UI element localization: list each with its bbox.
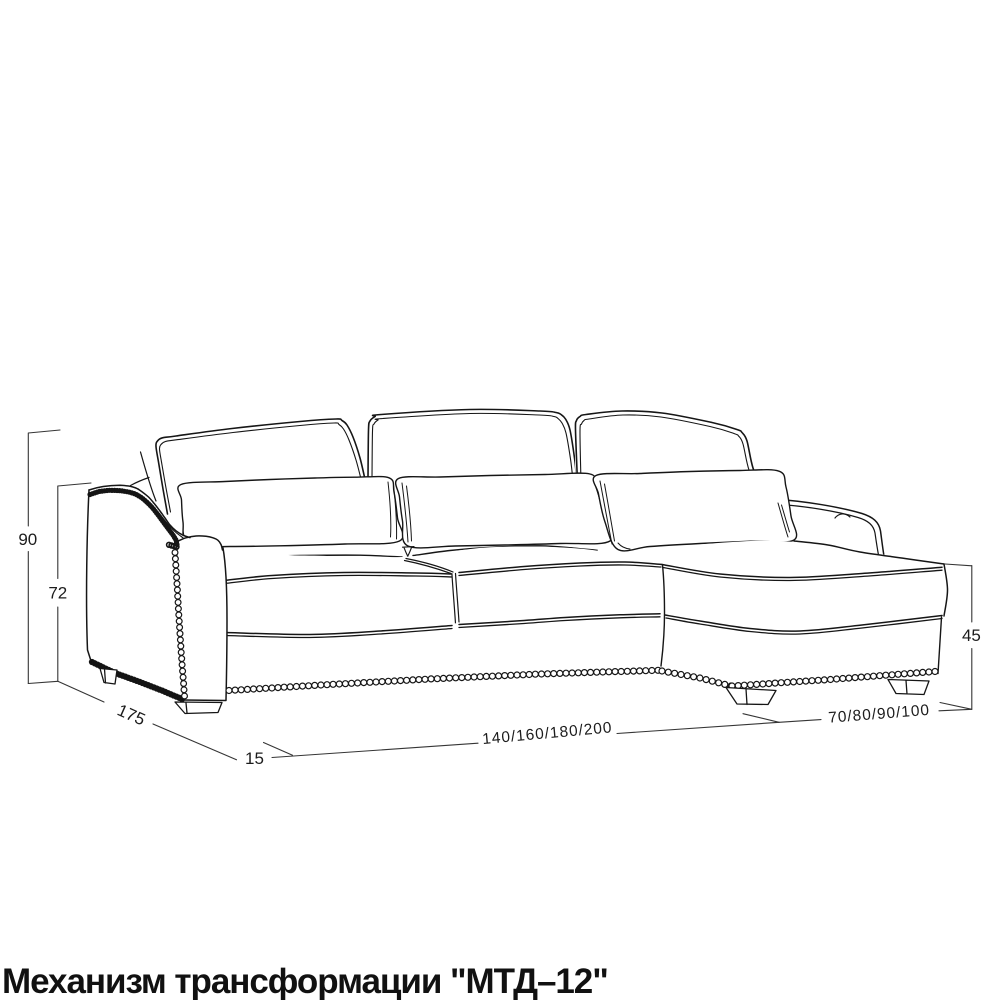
svg-text:140/160/180/200: 140/160/180/200 <box>482 719 614 748</box>
svg-text:72: 72 <box>48 584 67 603</box>
svg-text:175: 175 <box>114 701 148 730</box>
svg-text:15: 15 <box>245 749 264 768</box>
svg-text:Механизм трансформации "МТД–12: Механизм трансформации "МТД–12" <box>2 962 608 1000</box>
svg-text:45: 45 <box>962 626 981 645</box>
svg-text:90: 90 <box>18 530 37 549</box>
svg-text:70/80/90/100: 70/80/90/100 <box>828 702 931 727</box>
